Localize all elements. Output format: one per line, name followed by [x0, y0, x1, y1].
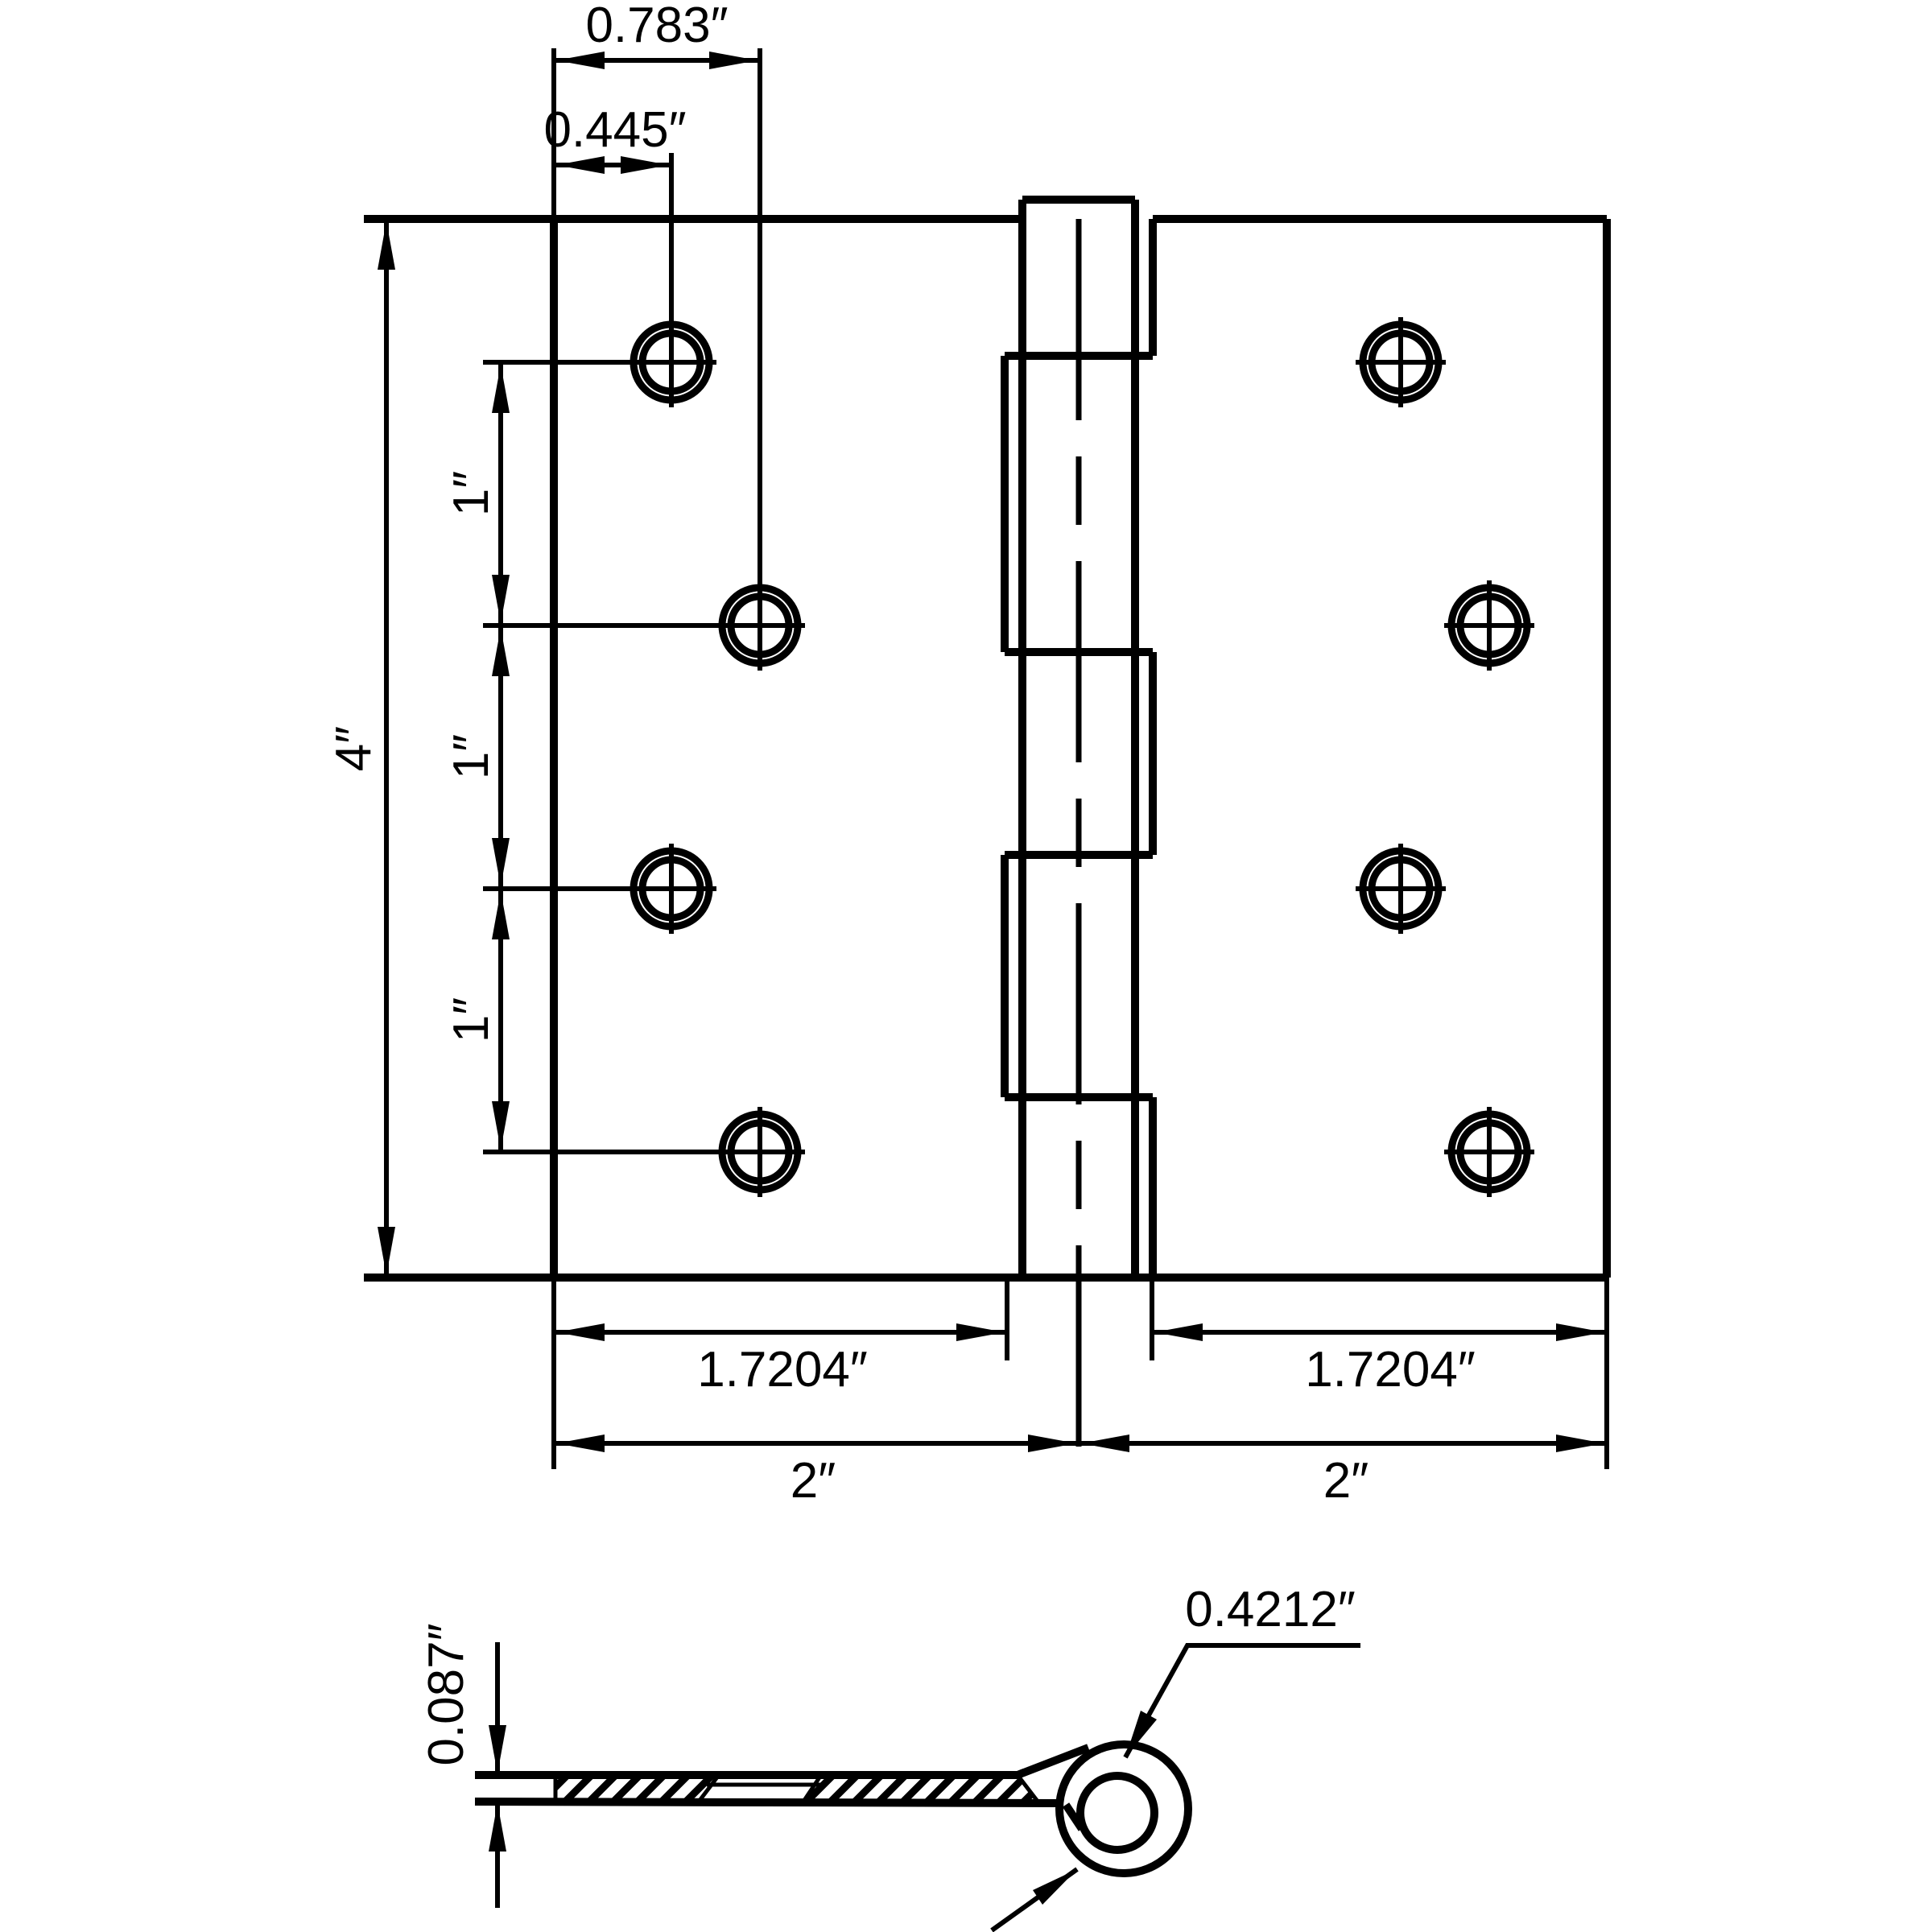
hinge-front-view: 0.783″ 0.445″ 4″ 1″ 1″ 1 — [326, 0, 1607, 1509]
screw-hole — [1356, 844, 1446, 934]
leader-bottom-truncated — [992, 1869, 1077, 1930]
screw-holes-left-leaf — [483, 324, 805, 1197]
section-hatch-right — [803, 1775, 1038, 1802]
section-hatch-left — [555, 1775, 719, 1802]
dim-label-knuckle-diameter: 0.4212″ — [1185, 1582, 1356, 1637]
screw-hole — [1356, 317, 1446, 407]
dim-leaf-thickness: 0.087″ — [419, 1623, 506, 1908]
dim-label-spacing-1: 1″ — [444, 471, 499, 516]
dim-label-spacing-2: 1″ — [444, 734, 499, 779]
dim-label-flat-left: 1.7204″ — [697, 1342, 868, 1397]
dim-label-width-left: 2″ — [791, 1453, 836, 1509]
leader-knuckle-diameter: 0.4212″ — [1125, 1582, 1360, 1757]
screw-hole — [1444, 1107, 1534, 1197]
dim-hole-spacings: 1″ 1″ 1″ — [444, 362, 510, 1152]
dim-label-width-right: 2″ — [1323, 1453, 1368, 1509]
dim-label-0783: 0.783″ — [585, 0, 728, 53]
screw-holes-right-leaf — [1356, 317, 1534, 1197]
knuckle-curl — [1018, 1744, 1188, 1873]
leaf-section — [475, 1775, 1060, 1803]
dim-label-0445: 0.445″ — [543, 102, 686, 158]
screw-hole — [1444, 580, 1534, 671]
hinge-side-view: 0.087″ 0.4212″ — [419, 1582, 1360, 1930]
dim-overall-height: 4″ — [326, 219, 395, 1278]
dim-label-spacing-3: 1″ — [444, 997, 499, 1042]
dim-label-height: 4″ — [326, 726, 382, 771]
dim-label-thickness: 0.087″ — [419, 1623, 474, 1765]
dim-label-flat-right: 1.7204″ — [1305, 1342, 1476, 1397]
hinge-technical-drawing: 0.783″ 0.445″ 4″ 1″ 1″ 1 — [0, 0, 1932, 1932]
dim-leaf-widths: 2″ 2″ — [554, 1435, 1607, 1509]
